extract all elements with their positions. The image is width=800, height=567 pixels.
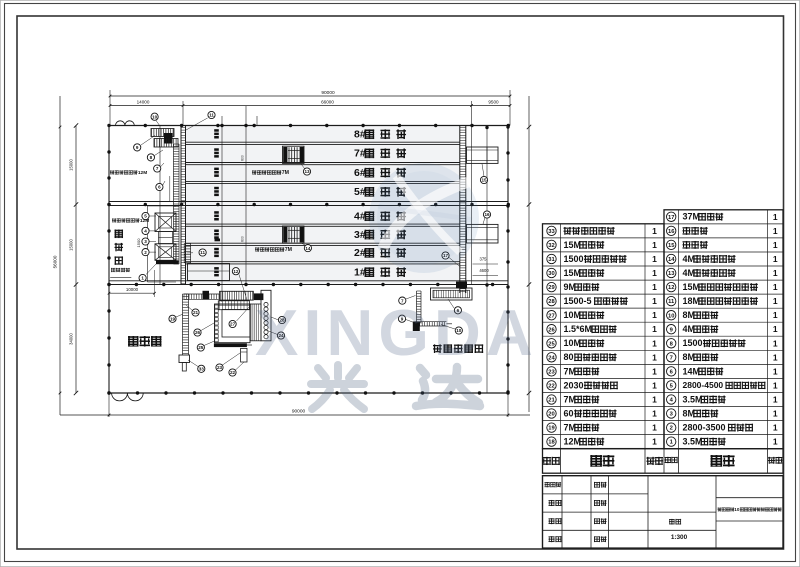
svg-text:1: 1 [773,423,778,433]
svg-text:80: 80 [564,352,574,362]
svg-text:2030: 2030 [564,380,584,390]
svg-text:2: 2 [144,250,147,255]
svg-text:16: 16 [668,229,675,235]
svg-text:15M: 15M [564,268,582,278]
svg-text:15: 15 [481,178,487,183]
svg-text:30: 30 [548,271,554,277]
svg-text:22: 22 [548,384,554,390]
svg-text:7#: 7# [354,148,366,160]
svg-text:3.5M: 3.5M [683,437,703,447]
svg-text:2: 2 [670,426,673,432]
svg-text:24: 24 [548,355,555,361]
svg-text:66000: 66000 [321,100,334,105]
svg-text:600: 600 [241,236,245,242]
svg-text:56000: 56000 [53,255,58,268]
svg-text:31: 31 [548,257,555,263]
svg-text:4#: 4# [354,211,366,223]
svg-text:10M: 10M [564,338,582,348]
svg-text:6: 6 [158,185,161,190]
svg-text:1: 1 [652,423,657,433]
svg-text:7: 7 [670,355,673,361]
svg-text:1500-5: 1500-5 [564,296,592,306]
svg-text:1:300: 1:300 [671,534,688,541]
svg-text:XINGDA: XINGDA [255,296,538,369]
svg-text:3.5M: 3.5M [683,394,703,404]
svg-text:60: 60 [564,408,574,418]
svg-text:34000: 34000 [69,333,74,345]
svg-text:1500: 1500 [683,338,703,348]
svg-text:21: 21 [193,310,199,315]
svg-text:1: 1 [652,380,657,390]
svg-text:22: 22 [230,370,236,375]
svg-text:1: 1 [652,437,657,447]
svg-text:9: 9 [136,145,139,150]
svg-text:14M: 14M [683,366,701,376]
svg-text:1: 1 [652,282,657,292]
svg-text:7M: 7M [285,247,292,253]
svg-text:12M: 12M [138,170,147,176]
svg-text:1: 1 [773,352,778,362]
svg-text:19: 19 [548,426,555,432]
svg-text:3#: 3# [354,229,366,241]
svg-text:16: 16 [484,212,490,217]
svg-text:11: 11 [668,299,675,305]
svg-text:3: 3 [144,239,147,244]
svg-text:33: 33 [199,367,205,372]
svg-text:14: 14 [668,257,675,263]
svg-text:1: 1 [773,310,778,320]
svg-text:20: 20 [548,412,554,418]
svg-text:15M: 15M [564,240,582,250]
svg-text:28: 28 [548,299,555,305]
svg-text:1: 1 [652,296,657,306]
svg-text:10: 10 [152,114,158,119]
svg-text:1.5*6M: 1.5*6M [564,324,593,334]
svg-text:29: 29 [548,285,555,291]
svg-text:2800-4500: 2800-4500 [683,380,724,390]
svg-text:23: 23 [548,370,555,376]
svg-text:90000: 90000 [292,409,306,415]
svg-text:1: 1 [773,296,778,306]
svg-text:4600: 4600 [479,268,489,273]
svg-text:21: 21 [548,398,555,404]
svg-text:1: 1 [773,380,778,390]
svg-text:26: 26 [548,327,555,333]
svg-text:18M: 18M [683,296,701,306]
svg-text:15: 15 [668,243,675,249]
svg-text:15000: 15000 [69,239,74,251]
svg-text:1: 1 [773,212,778,222]
svg-text:13: 13 [304,169,310,174]
svg-text:27: 27 [230,322,236,327]
svg-text:1#: 1# [354,267,366,279]
svg-text:1: 1 [652,366,657,376]
svg-text:1: 1 [652,324,657,334]
svg-text:1: 1 [652,395,657,405]
svg-text:8: 8 [150,155,153,160]
svg-text:9500: 9500 [488,100,499,105]
svg-text:1500: 1500 [136,238,141,248]
svg-text:33: 33 [548,229,555,235]
svg-text:15000: 15000 [69,159,74,171]
svg-text:23: 23 [217,365,223,370]
svg-text:7: 7 [156,166,159,171]
svg-text:8#: 8# [354,129,366,141]
svg-text:1: 1 [652,310,657,320]
svg-text:5: 5 [144,214,147,219]
svg-text:1: 1 [773,437,778,447]
svg-text:6#: 6# [354,167,366,179]
svg-text:1: 1 [141,276,144,281]
svg-text:1: 1 [652,240,657,250]
svg-text:2#: 2# [354,247,366,259]
svg-text:26: 26 [195,330,201,335]
svg-text:1: 1 [773,395,778,405]
svg-text:1: 1 [773,268,778,278]
svg-text:10000: 10000 [126,287,139,292]
svg-text:37M: 37M [683,212,701,222]
svg-text:32: 32 [548,243,554,249]
svg-text:1: 1 [652,254,657,264]
svg-text:375: 375 [480,257,488,262]
svg-text:1500: 1500 [564,254,584,264]
svg-text:10M: 10M [564,310,582,320]
svg-text:12: 12 [668,285,674,291]
svg-text:4: 4 [144,229,147,234]
svg-text:1: 1 [773,409,778,419]
svg-text:1: 1 [652,409,657,419]
svg-text:7M: 7M [282,170,289,176]
svg-text:19: 19 [170,317,176,322]
svg-text:1: 1 [652,352,657,362]
svg-text:11: 11 [200,250,205,255]
svg-text:12M: 12M [564,437,582,447]
svg-text:14000: 14000 [137,100,150,105]
svg-text:2800-3500: 2800-3500 [683,423,726,433]
svg-text:25: 25 [548,341,555,347]
svg-text:1: 1 [773,338,778,348]
svg-text:1: 1 [773,282,778,292]
svg-text:15M: 15M [683,282,701,292]
svg-text:12: 12 [233,269,239,274]
svg-text:11: 11 [209,113,214,118]
svg-text:14: 14 [305,246,311,251]
svg-text:10: 10 [668,313,674,319]
svg-text:18: 18 [548,440,555,446]
svg-text:1: 1 [652,226,657,236]
svg-text:1: 1 [652,268,657,278]
svg-text:1: 1 [773,240,778,250]
svg-text:1: 1 [652,338,657,348]
svg-text:1: 1 [773,366,778,376]
svg-text:5#: 5# [354,186,366,198]
svg-text:27: 27 [548,313,554,319]
svg-text:600: 600 [241,155,245,161]
svg-text:25: 25 [198,345,204,350]
svg-text:17: 17 [668,215,674,221]
svg-text:1: 1 [773,324,778,334]
svg-text:10: 10 [734,507,740,512]
svg-text:90000: 90000 [321,90,335,96]
svg-text:1: 1 [773,226,778,236]
svg-text:13: 13 [668,271,675,277]
svg-text:1: 1 [773,254,778,264]
